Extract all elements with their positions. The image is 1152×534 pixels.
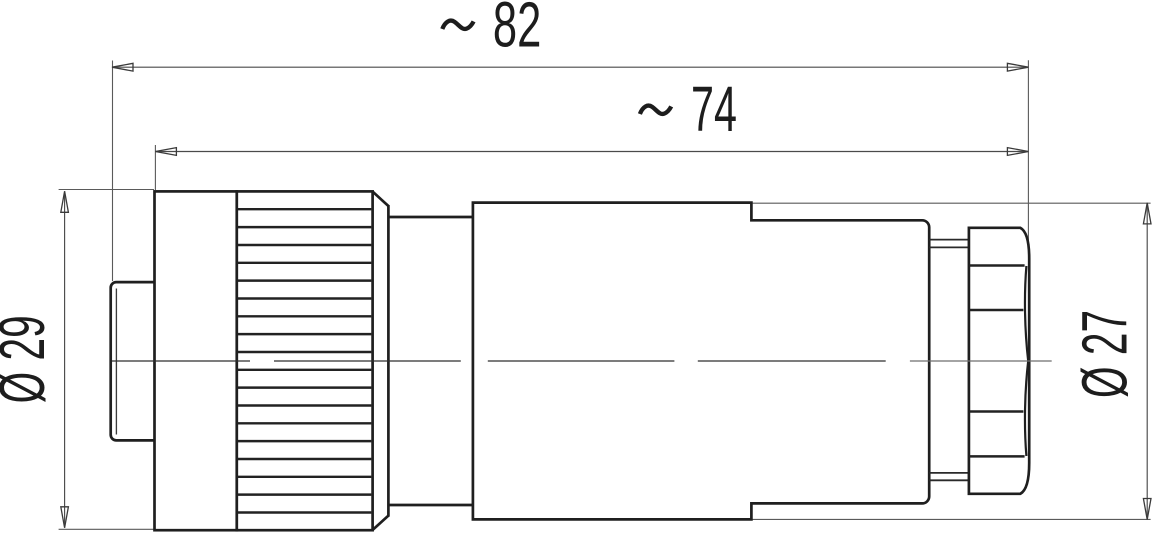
- svg-text:82: 82: [493, 0, 541, 60]
- svg-text:Ø 29: Ø 29: [0, 315, 59, 403]
- svg-text:Ø 27: Ø 27: [1069, 310, 1141, 398]
- svg-text:74: 74: [691, 74, 737, 145]
